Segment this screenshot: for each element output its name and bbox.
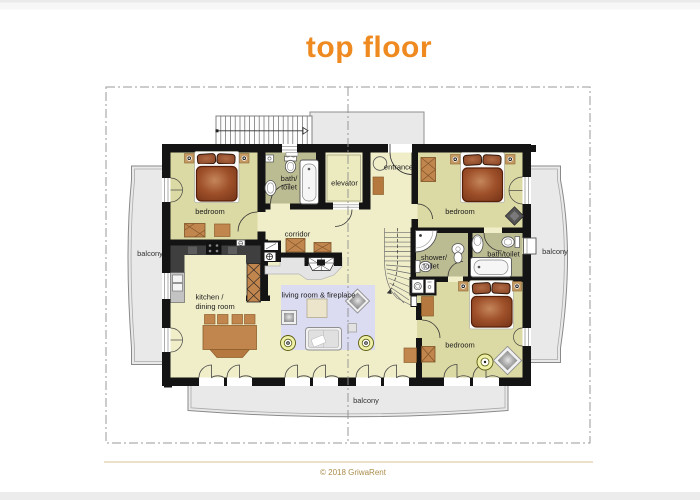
svg-text:entrance: entrance [384, 163, 413, 172]
svg-text:balcony: balcony [353, 396, 379, 405]
svg-text:dining room: dining room [196, 302, 235, 311]
svg-text:living room & fireplace: living room & fireplace [282, 291, 356, 300]
svg-text:bedroom: bedroom [445, 341, 475, 350]
svg-text:balcony: balcony [542, 247, 568, 256]
svg-text:bath/toilet: bath/toilet [487, 250, 520, 259]
svg-text:top floor: top floor [306, 31, 432, 64]
svg-text:bedroom: bedroom [195, 207, 225, 216]
svg-text:elevator: elevator [331, 179, 358, 188]
svg-text:balcony: balcony [137, 249, 163, 258]
svg-text:bedroom: bedroom [445, 207, 475, 216]
svg-text:kitchen /: kitchen / [196, 293, 225, 302]
svg-text:toilet: toilet [281, 183, 298, 192]
svg-text:© 2018 GriwaRent: © 2018 GriwaRent [320, 468, 387, 477]
svg-text:toilet: toilet [423, 262, 440, 271]
svg-text:corridor: corridor [285, 230, 311, 239]
